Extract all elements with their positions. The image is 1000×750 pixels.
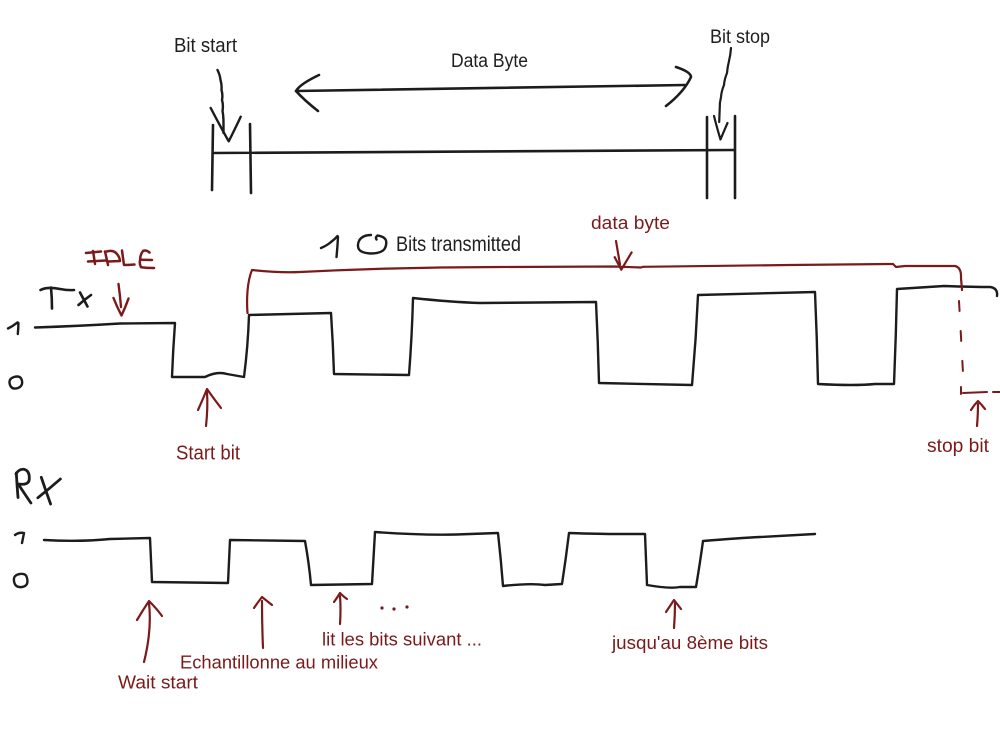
svg-text:jusqu'au 8ème bits: jusqu'au 8ème bits [611, 632, 768, 653]
svg-text:data byte: data byte [591, 212, 670, 233]
svg-text:Bits transmitted: Bits transmitted [396, 233, 521, 256]
svg-text:stop bit: stop bit [927, 435, 990, 457]
svg-text:Data Byte: Data Byte [451, 51, 528, 72]
svg-text:Echantillonne au milieux: Echantillonne au milieux [180, 652, 379, 673]
svg-text:Start bit: Start bit [176, 443, 240, 465]
svg-text:lit les bits suivant ...: lit les bits suivant ... [322, 629, 482, 650]
svg-text:Bit start: Bit start [174, 35, 237, 57]
svg-text:Bit stop: Bit stop [710, 26, 770, 48]
svg-text:Wait start: Wait start [118, 672, 198, 693]
